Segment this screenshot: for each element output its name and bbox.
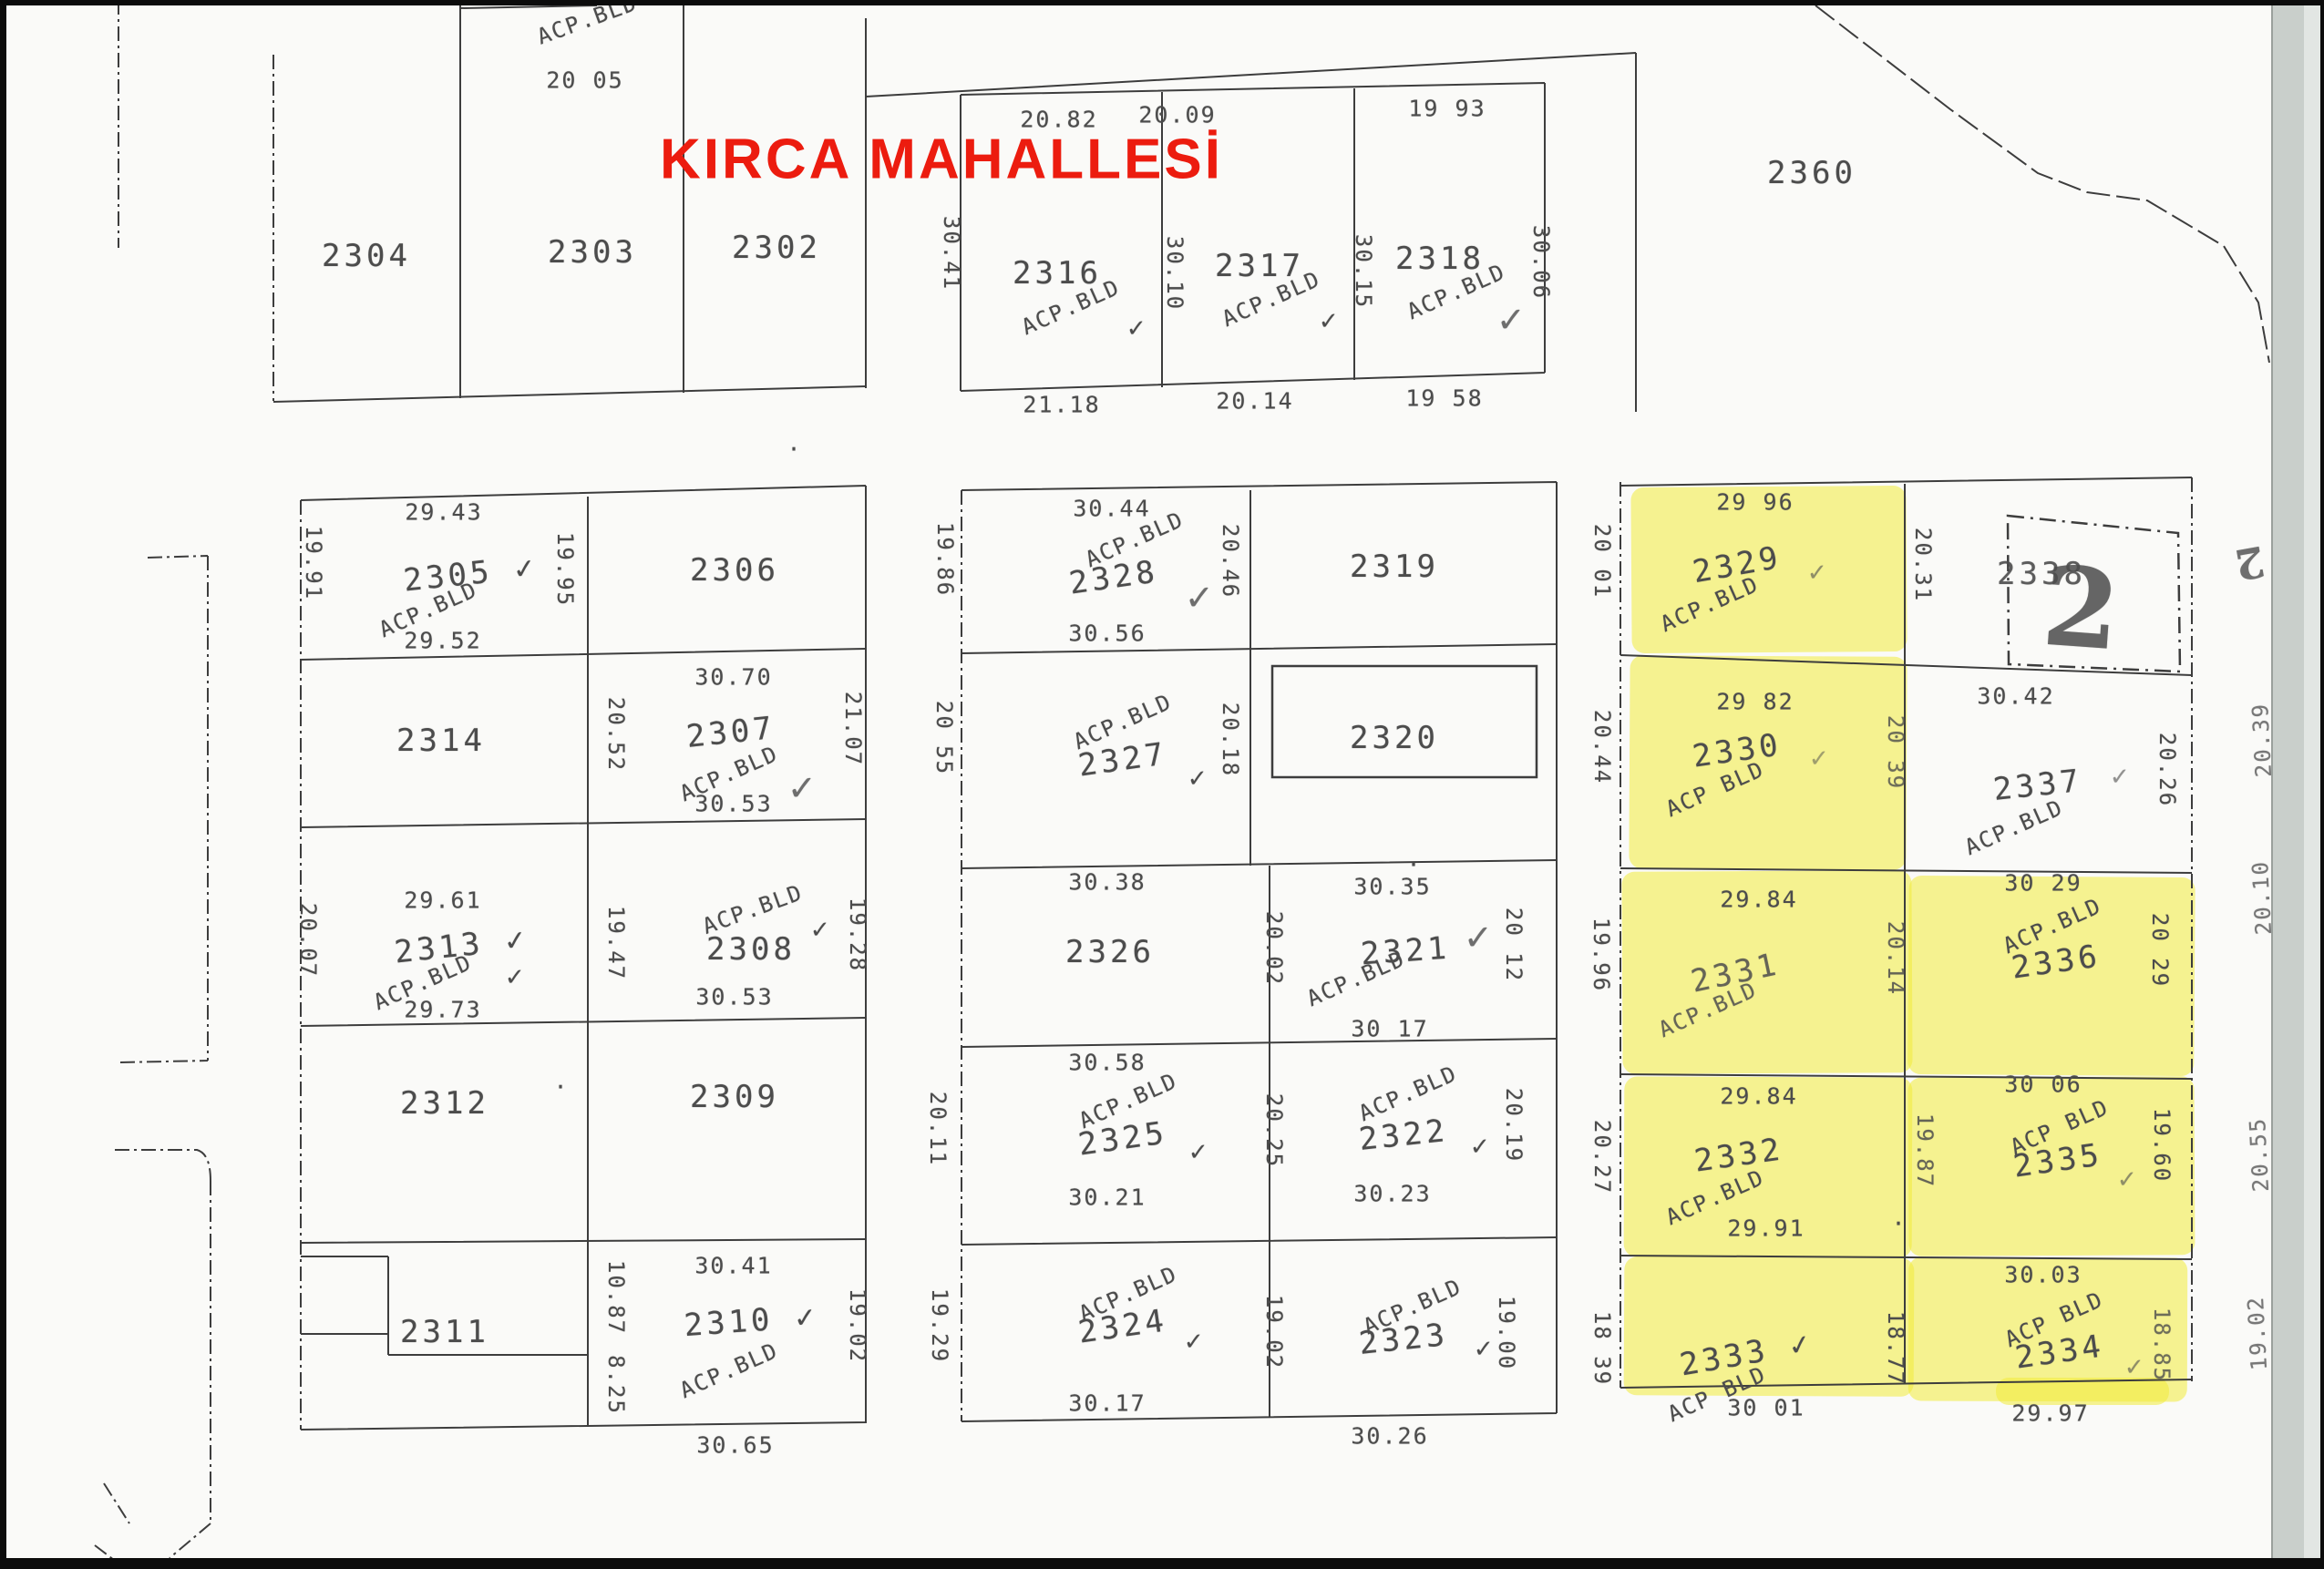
measurement-label: 30.41 [694, 1253, 772, 1279]
parcel-number: 2320 [1350, 720, 1439, 756]
frame-top [0, 0, 2324, 5]
measurement-label: . [553, 1068, 569, 1094]
check-mark: ✓ [1498, 296, 1524, 343]
measurement-label-vertical: 19.96 [1589, 918, 1614, 992]
margin-measurement-label: 20.55 [2245, 1116, 2274, 1193]
parcel-number: 2314 [396, 723, 486, 759]
frame-bottom [0, 1558, 2324, 1569]
check-mark: ✓ [506, 961, 523, 993]
measurement-label-vertical: 20.19 [1501, 1088, 1527, 1163]
measurement-label-vertical: 20.44 [1589, 710, 1615, 784]
measurement-label: 21.18 [1023, 392, 1100, 418]
outer-boundary-lines [866, 5, 2269, 412]
map-title: KIRCA MAHALLESİ [660, 128, 1223, 192]
measurement-label: 30.56 [1068, 620, 1146, 647]
measurement-label: 30 17 [1351, 1016, 1428, 1042]
measurement-label: 30.38 [1068, 869, 1146, 896]
measurement-label: 30.53 [695, 984, 773, 1010]
measurement-label-vertical: 18 39 [1589, 1311, 1615, 1386]
measurement-label: 30.21 [1068, 1184, 1146, 1211]
frame-left [0, 0, 6, 1569]
parcel-number: 2306 [690, 552, 779, 589]
parcel-number: 2326 [1065, 934, 1155, 970]
measurement-label: 29.73 [404, 997, 481, 1023]
measurement-label: 30 01 [1727, 1395, 1805, 1421]
measurement-label-vertical: 30.15 [1351, 234, 1376, 309]
block-top-left-outline [273, 0, 866, 402]
measurement-label-vertical: 19.95 [552, 532, 578, 607]
measurement-label: 29.84 [1720, 887, 1797, 913]
check-mark: ✓ [1808, 557, 1825, 589]
measurement-label-vertical: 20.26 [2154, 733, 2180, 807]
check-mark: ✓ [789, 764, 815, 811]
measurement-label-vertical: 19.91 [301, 526, 326, 600]
measurement-label: 30.53 [694, 791, 772, 817]
measurement-label: 30 29 [2004, 870, 2082, 897]
measurement-label-vertical: 20.25 [1261, 1093, 1287, 1168]
measurement-label-vertical: 19.60 [2149, 1108, 2175, 1183]
parcel-number: 2311 [400, 1314, 489, 1350]
parcel-number: 2360 [1767, 155, 1856, 191]
parcel-number: 2302 [732, 230, 821, 266]
measurement-label-vertical: 19.86 [932, 522, 958, 597]
check-mark: ✓ [1471, 1131, 1488, 1163]
measurement-label: 30.58 [1068, 1050, 1146, 1076]
check-mark: ✓ [1810, 743, 1827, 774]
measurement-label: . [1406, 846, 1422, 872]
measurement-label-vertical: 20 29 [2147, 913, 2173, 988]
measurement-label-vertical: 20 39 [1883, 715, 1908, 790]
scan-edge-band [2271, 0, 2306, 1569]
measurement-label-vertical: 20.11 [925, 1092, 951, 1166]
cadastral-map-page: { "title": "KIRCA MAHALLESİ", "colors": … [0, 0, 2324, 1569]
measurement-label-vertical: 10.87 [603, 1260, 629, 1335]
measurement-label: 29.52 [404, 628, 481, 654]
measurement-label: 30.17 [1068, 1390, 1146, 1417]
measurement-label: 29.84 [1720, 1083, 1797, 1110]
measurement-label: 30 06 [2004, 1072, 2082, 1098]
margin-measurement-label: 19.02 [2243, 1295, 2272, 1371]
measurement-label-vertical: 19.02 [845, 1288, 870, 1363]
parcel-number: 2308 [706, 931, 796, 968]
road-lines [95, 0, 211, 1569]
measurement-label-vertical: 20 01 [1589, 524, 1615, 599]
measurement-label-vertical: 19.00 [1494, 1296, 1519, 1370]
measurement-label: 30.23 [1353, 1181, 1431, 1207]
check-mark: ✓ [1189, 1136, 1207, 1168]
measurement-label-vertical: 20.02 [1261, 911, 1287, 986]
check-mark: ✓ [1188, 763, 1206, 795]
measurement-label: 30.44 [1073, 496, 1150, 522]
measurement-label: . [1891, 1205, 1907, 1231]
measurement-label-vertical: 19.28 [845, 897, 870, 972]
measurement-label: 19 58 [1405, 385, 1483, 412]
measurement-label-vertical: 18.77 [1883, 1311, 1908, 1386]
measurement-label-vertical: 30.10 [1162, 236, 1188, 311]
check-mark: ✓ [811, 914, 828, 946]
measurement-label: . [787, 430, 802, 456]
measurement-label-vertical: 20.07 [295, 903, 321, 978]
check-mark: ✓ [1127, 313, 1145, 344]
measurement-label-vertical: 19.87 [1912, 1113, 1938, 1188]
measurement-label: 19 93 [1408, 96, 1486, 122]
parcel-number: 2309 [690, 1079, 779, 1115]
measurement-label-vertical: 8.25 [603, 1355, 629, 1415]
map-canvas: ACP.BLD ✓20 0523042303230220.8220.0919 9… [0, 0, 2324, 1569]
measurement-label-vertical: 20.18 [1218, 702, 1243, 777]
check-mark: ✓ [1465, 914, 1491, 960]
measurement-label-vertical: 19.29 [927, 1288, 952, 1363]
check-mark: ✓ [2125, 1351, 2143, 1383]
measurement-label: 20.09 [1138, 102, 1216, 128]
measurement-label-vertical: 30.41 [939, 216, 964, 291]
measurement-label: 30.42 [1977, 683, 2054, 710]
check-mark: ✓ [1187, 574, 1212, 620]
handwritten-2: 2 [2039, 542, 2124, 676]
measurement-label-vertical: 19.02 [1261, 1295, 1287, 1369]
measurement-label: 29 96 [1716, 489, 1794, 516]
measurement-label: 20.14 [1216, 388, 1293, 415]
parcel-number: 2319 [1350, 549, 1439, 585]
measurement-label: 30.65 [696, 1432, 774, 1459]
measurement-label-vertical: 20 55 [931, 701, 957, 775]
check-mark: ✓ [2118, 1164, 2135, 1195]
measurement-label: 20 05 [546, 67, 623, 94]
measurement-label-vertical: 20.14 [1883, 921, 1908, 996]
measurement-label: 30.03 [2004, 1262, 2082, 1288]
measurement-label-vertical: 20 12 [1501, 908, 1527, 982]
measurement-label: 30.35 [1353, 874, 1431, 900]
check-mark: ✓ [1475, 1333, 1492, 1365]
parcel-number: 2312 [400, 1085, 489, 1122]
measurement-label-vertical: 19.47 [603, 906, 629, 980]
parcel-number: 2303 [548, 234, 637, 271]
measurement-label: 29.61 [404, 887, 481, 914]
measurement-label: 30.26 [1351, 1423, 1428, 1450]
measurement-label: 29.97 [2011, 1400, 2089, 1427]
measurement-label-vertical: 21.07 [840, 692, 866, 766]
measurement-label-vertical: 30.06 [1528, 225, 1554, 300]
measurement-label: 29.43 [405, 499, 482, 526]
measurement-label-vertical: 20.46 [1218, 524, 1243, 599]
measurement-label-vertical: 18.85 [2149, 1307, 2175, 1382]
parcel-number: 2304 [322, 238, 411, 274]
measurement-label: 29.91 [1727, 1215, 1805, 1242]
measurement-label: 30.70 [694, 664, 772, 691]
measurement-label: 29 82 [1716, 689, 1794, 715]
frame-right [2320, 0, 2324, 1569]
check-mark: ✓ [1185, 1326, 1202, 1358]
check-mark: ✓ [2111, 761, 2128, 793]
check-mark: ✓ [1320, 305, 1337, 337]
measurement-label-vertical: 20.52 [603, 697, 629, 772]
measurement-label-vertical: 20.27 [1589, 1120, 1615, 1195]
measurement-label-vertical: 20.31 [1910, 528, 1936, 602]
